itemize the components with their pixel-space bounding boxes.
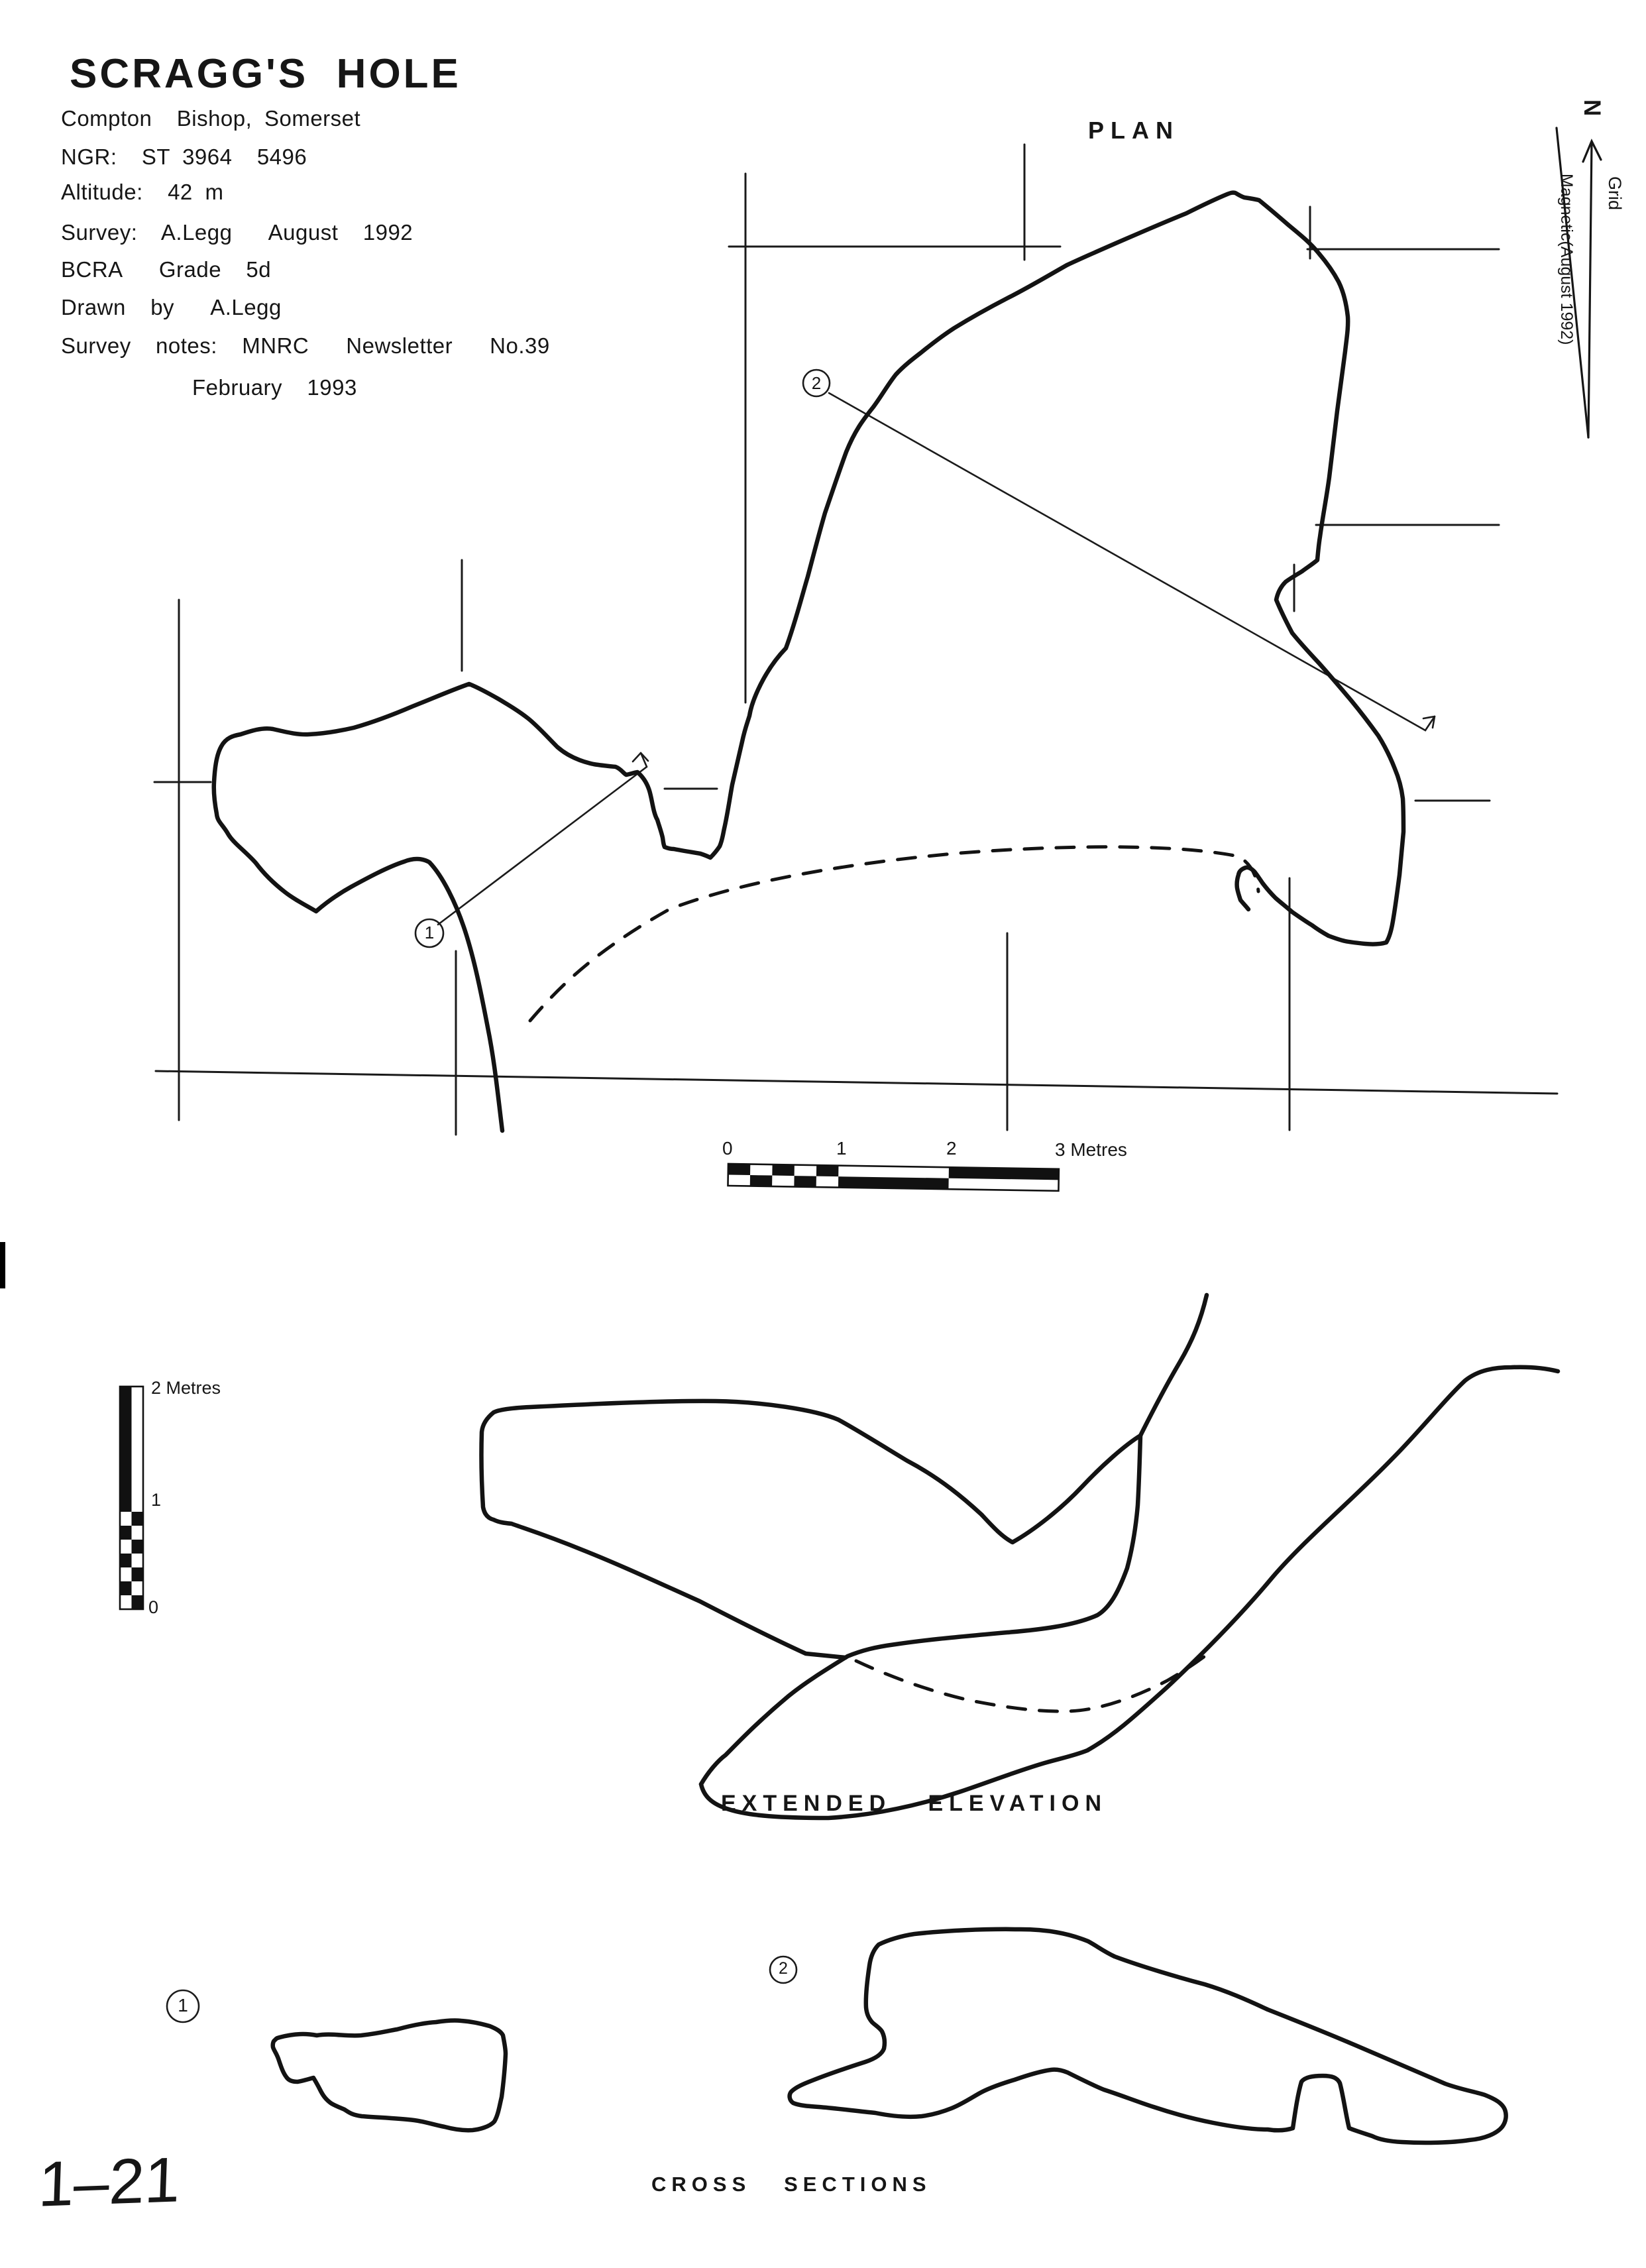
plan-lower-passage-dashed <box>530 847 1258 1021</box>
survey-grid <box>154 144 1557 1135</box>
plan-scale-0: 0 <box>722 1138 733 1159</box>
extended-elevation-label: EXTENDED ELEVATION <box>721 1791 1107 1817</box>
plan-scale-3-metres: 3 Metres <box>1055 1139 1127 1161</box>
page-title: SCRAGG'S HOLE <box>70 50 461 97</box>
cross-section-drawings <box>273 1929 1506 2143</box>
plan-section-marker-1: 1 <box>421 923 438 943</box>
plan-section-marker-2: 2 <box>808 373 825 394</box>
page-number: 1–21 <box>37 2143 181 2222</box>
elevation-scale-bar <box>120 1387 143 1609</box>
elevation-lower-passage-roof <box>701 1436 1140 1784</box>
elevation-dashed-floor <box>856 1650 1213 1711</box>
elev-scale-2m: 2 Metres <box>151 1378 221 1398</box>
section-line-1 <box>438 753 647 925</box>
plan-scale-bar <box>728 1164 1058 1191</box>
header-notes-date: February 1993 <box>192 375 357 400</box>
header-altitude: Altitude: 42 m <box>61 180 223 205</box>
section-lines <box>167 370 1435 2022</box>
cave-survey-sheet: SCRAGG'S HOLE Compton Bishop, Somerset N… <box>0 0 1646 2268</box>
section-line-2 <box>829 393 1435 730</box>
plan-scale-1: 1 <box>836 1138 847 1159</box>
header-drawn-by: Drawn by A.Legg <box>61 295 282 320</box>
header-notes: Survey notes: MNRC Newsletter No.39 <box>61 333 550 359</box>
elevation-lower-passage-floor <box>701 1367 1558 1818</box>
scan-edge-artifact <box>0 1242 5 1288</box>
header-location: Compton Bishop, Somerset <box>61 106 360 131</box>
cross-sections-label: CROSS SECTIONS <box>651 2173 932 2196</box>
plan-label: PLAN <box>1088 117 1180 144</box>
header-grade: BCRA Grade 5d <box>61 257 271 282</box>
grid-north-line <box>1588 142 1592 437</box>
elev-scale-0: 0 <box>148 1597 158 1618</box>
elevation-entrance-line <box>1140 1295 1207 1437</box>
magnetic-north-label: Magnetic(August 1992) <box>1557 174 1576 345</box>
cross-section-marker-2: 2 <box>775 1959 792 1978</box>
elev-scale-1: 1 <box>151 1490 161 1510</box>
header-ngr: NGR: ST 3964 5496 <box>61 144 307 170</box>
elevation-drawing <box>481 1295 1558 1818</box>
north-n-label: N <box>1578 99 1605 116</box>
elevation-upper-passage <box>481 1401 1140 1658</box>
plan-scale-2: 2 <box>946 1138 957 1159</box>
header-survey: Survey: A.Legg August 1992 <box>61 220 413 245</box>
cross-section-2-outline <box>790 1929 1506 2143</box>
cross-section-1-outline <box>273 2021 506 2131</box>
grid-north-label: Grid <box>1604 176 1625 210</box>
section-arrowhead-icon <box>633 753 648 762</box>
cross-section-marker-1: 1 <box>174 1995 192 2016</box>
grid-line <box>156 1071 1557 1094</box>
